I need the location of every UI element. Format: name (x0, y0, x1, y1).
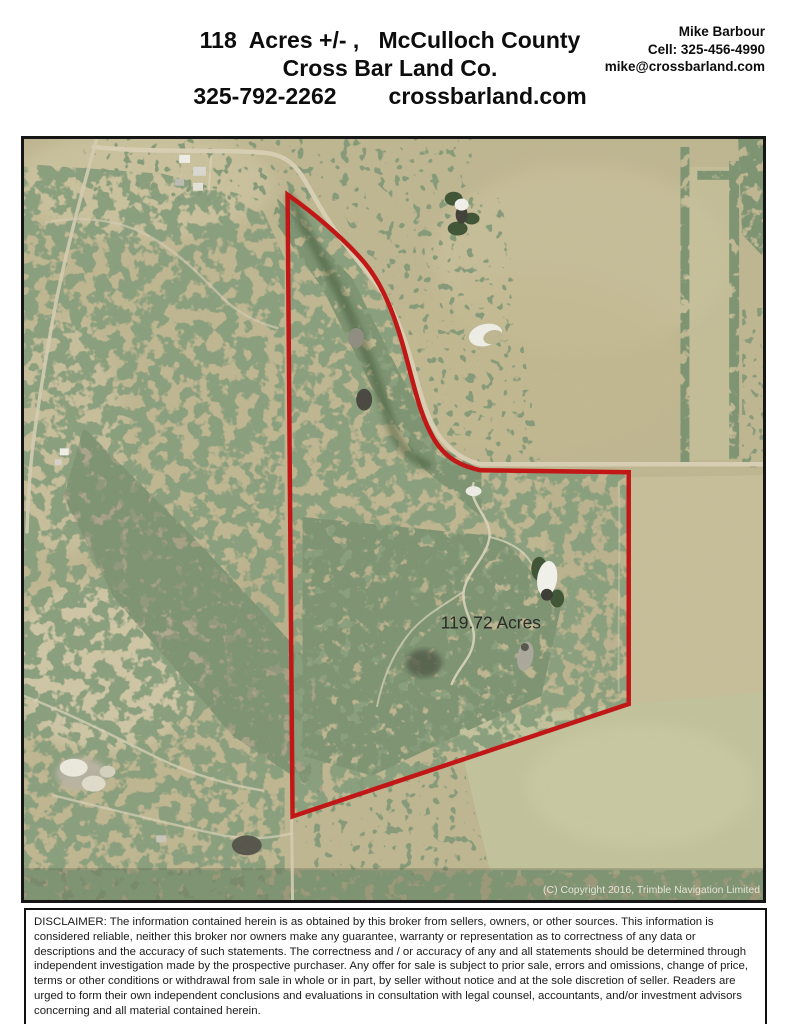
header-acreage-county: 118 Acres +/- , McCulloch County (90, 26, 690, 54)
aerial-map-svg: 119.72 Acres (C) Copyright 2016, Trimble… (24, 139, 763, 900)
acreage-label: 119.72 Acres (441, 612, 542, 632)
agent-contact-block: Mike Barbour Cell: 325-456-4990 mike@cro… (605, 23, 765, 76)
map-copyright: (C) Copyright 2016, Trimble Navigation L… (543, 885, 760, 896)
header-company-name: Cross Bar Land Co. (90, 54, 690, 82)
aerial-map: 119.72 Acres (C) Copyright 2016, Trimble… (21, 136, 766, 903)
disclaimer-box: DISCLAIMER: The information contained he… (24, 908, 767, 1024)
header-phone: 325-792-2262 (193, 83, 336, 109)
agent-name: Mike Barbour (605, 23, 765, 41)
flyer-page: 118 Acres +/- , McCulloch County Cross B… (0, 0, 791, 1024)
header-phone-website: 325-792-2262crossbarland.com (90, 82, 690, 110)
agent-email: mike@crossbarland.com (605, 58, 765, 76)
agent-cell: Cell: 325-456-4990 (605, 41, 765, 59)
header-title-block: 118 Acres +/- , McCulloch County Cross B… (90, 26, 690, 110)
header-website: crossbarland.com (389, 83, 587, 109)
disclaimer-text: DISCLAIMER: The information contained he… (34, 916, 748, 1017)
photo-grain (24, 139, 763, 900)
